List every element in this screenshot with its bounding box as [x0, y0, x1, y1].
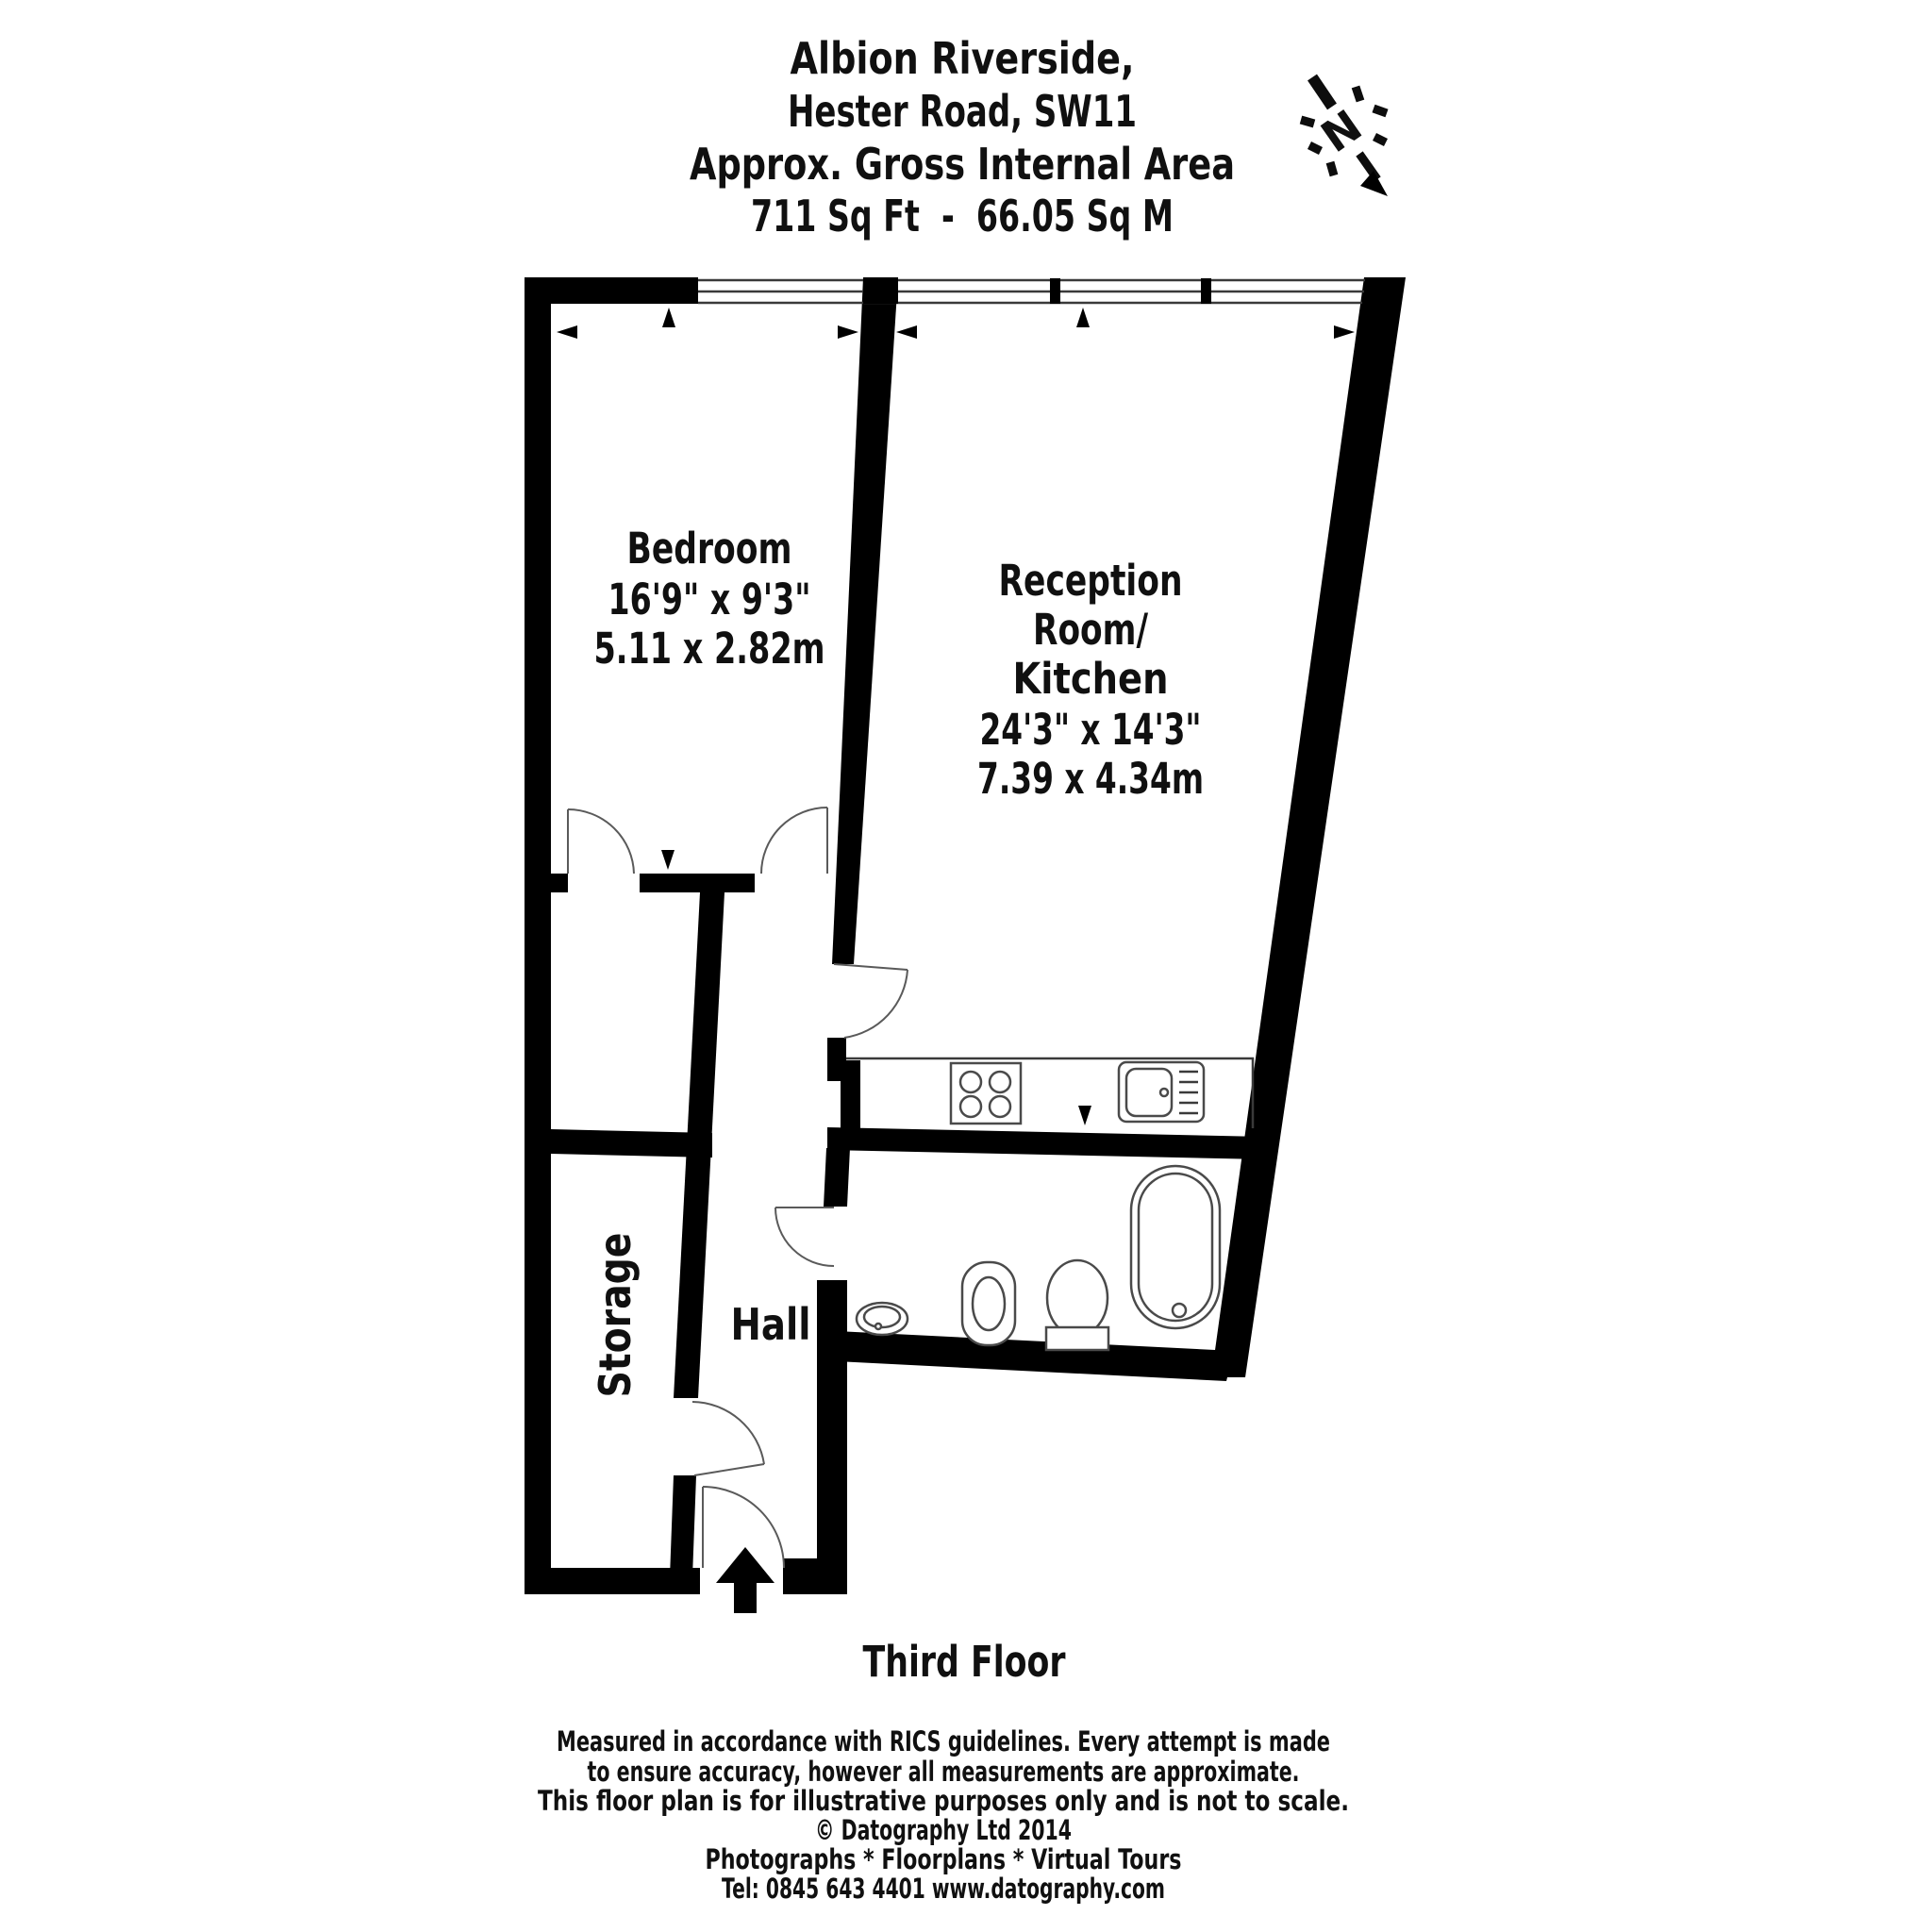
bedroom-dim-arrow-top — [662, 308, 675, 327]
bathtub-icon — [1131, 1166, 1220, 1328]
floor-label: Third Floor — [863, 1637, 1067, 1687]
kitchen-fixtures — [846, 1058, 1253, 1128]
reception-dim-arrow-right — [1334, 325, 1355, 339]
dimension-arrows — [557, 308, 1355, 1125]
hall-label: Hall — [731, 1299, 811, 1350]
bedroom-label: Bedroom — [627, 524, 792, 574]
wall-hall-bathroom-upper — [824, 1148, 850, 1207]
wall-hall-bathroom-lower — [817, 1280, 847, 1568]
north-arrow-icon: N — [1301, 77, 1388, 196]
bedroom-door-icon — [761, 808, 827, 874]
doors — [568, 808, 908, 1568]
basin-icon — [857, 1303, 908, 1335]
footer-contact: Tel: 0845 643 4401 www.datography.com — [722, 1873, 1165, 1905]
storage-door-icon — [692, 1402, 764, 1475]
wall-left — [525, 277, 551, 1594]
toilet-icon — [1046, 1260, 1108, 1350]
reception-label-line2: Room/ — [1033, 605, 1148, 655]
wall-bedroom-bottom-stub — [551, 874, 568, 892]
windows — [698, 277, 1365, 304]
bedroom-dim-arrow-bottom — [661, 850, 675, 870]
wall-storage-top — [551, 1129, 712, 1158]
window-mullion-2 — [1201, 278, 1211, 304]
wall-bathroom-bottom — [817, 1330, 1234, 1381]
wall-hall-bathroom-foot — [783, 1558, 847, 1594]
reception-dim-arrow-bottom — [1078, 1106, 1091, 1125]
closet-door-icon — [568, 809, 634, 874]
window-pier — [863, 277, 898, 304]
footer-disclaimer-3: This floor plan is for illustrative purp… — [538, 1785, 1349, 1817]
footer: Measured in accordance with RICS guideli… — [538, 1725, 1349, 1905]
reception-label-line1: Reception — [999, 556, 1183, 606]
storage-label: Storage — [590, 1233, 641, 1398]
title-line-1: Albion Riverside, — [791, 33, 1135, 84]
reception-size-imperial: 24'3" x 14'3" — [980, 705, 1202, 755]
reception-size-metric: 7.39 x 4.34m — [977, 754, 1204, 804]
window-mullion-1 — [1050, 278, 1060, 304]
bathroom-door-icon — [775, 1207, 834, 1266]
footer-disclaimer-1: Measured in accordance with RICS guideli… — [557, 1725, 1330, 1757]
title-line-3: Approx. Gross Internal Area — [690, 139, 1235, 190]
bathroom-fixtures — [857, 1166, 1220, 1350]
sink-icon — [1119, 1062, 1204, 1122]
title-line-2: Hester Road, SW11 — [788, 86, 1137, 137]
wall-bedroom-bottom-bar — [640, 874, 755, 892]
wall-storage-door-stub — [670, 1475, 696, 1577]
wall-right-slanted — [1211, 277, 1406, 1377]
entry-arrow-icon — [716, 1547, 774, 1613]
title-line-4: 711 Sq Ft - 66.05 Sq M — [751, 191, 1174, 241]
footer-disclaimer-2: to ensure accuracy, however all measurem… — [588, 1756, 1300, 1788]
reception-door-icon — [834, 964, 908, 1038]
hob-icon — [951, 1063, 1021, 1124]
reception-dim-arrow-left — [896, 325, 917, 339]
bidet-icon — [962, 1262, 1015, 1345]
bedroom-dim-arrow-right — [838, 325, 858, 339]
wall-kitchen-bathroom — [827, 1127, 1264, 1159]
bedroom-size-metric: 5.11 x 2.82m — [594, 624, 825, 674]
walls — [525, 277, 1406, 1594]
footer-copyright: © Datography Ltd 2014 — [815, 1814, 1072, 1846]
wall-bedroom-reception-divider — [832, 277, 898, 964]
title-block: Albion Riverside, Hester Road, SW11 Appr… — [690, 33, 1235, 241]
wall-divider-jog-lower — [841, 1060, 860, 1134]
north-arrowhead — [1360, 171, 1388, 196]
floorplan-canvas: N Albion Riverside, Hester Road, SW11 Ap… — [0, 0, 1932, 1932]
reception-label-line3: Kitchen — [1013, 654, 1169, 704]
bedroom-size-imperial: 16'9" x 9'3" — [608, 575, 811, 625]
footer-services: Photographs * Floorplans * Virtual Tours — [706, 1843, 1182, 1875]
bedroom-dim-arrow-left — [557, 325, 577, 339]
reception-dim-arrow-top — [1076, 308, 1090, 327]
